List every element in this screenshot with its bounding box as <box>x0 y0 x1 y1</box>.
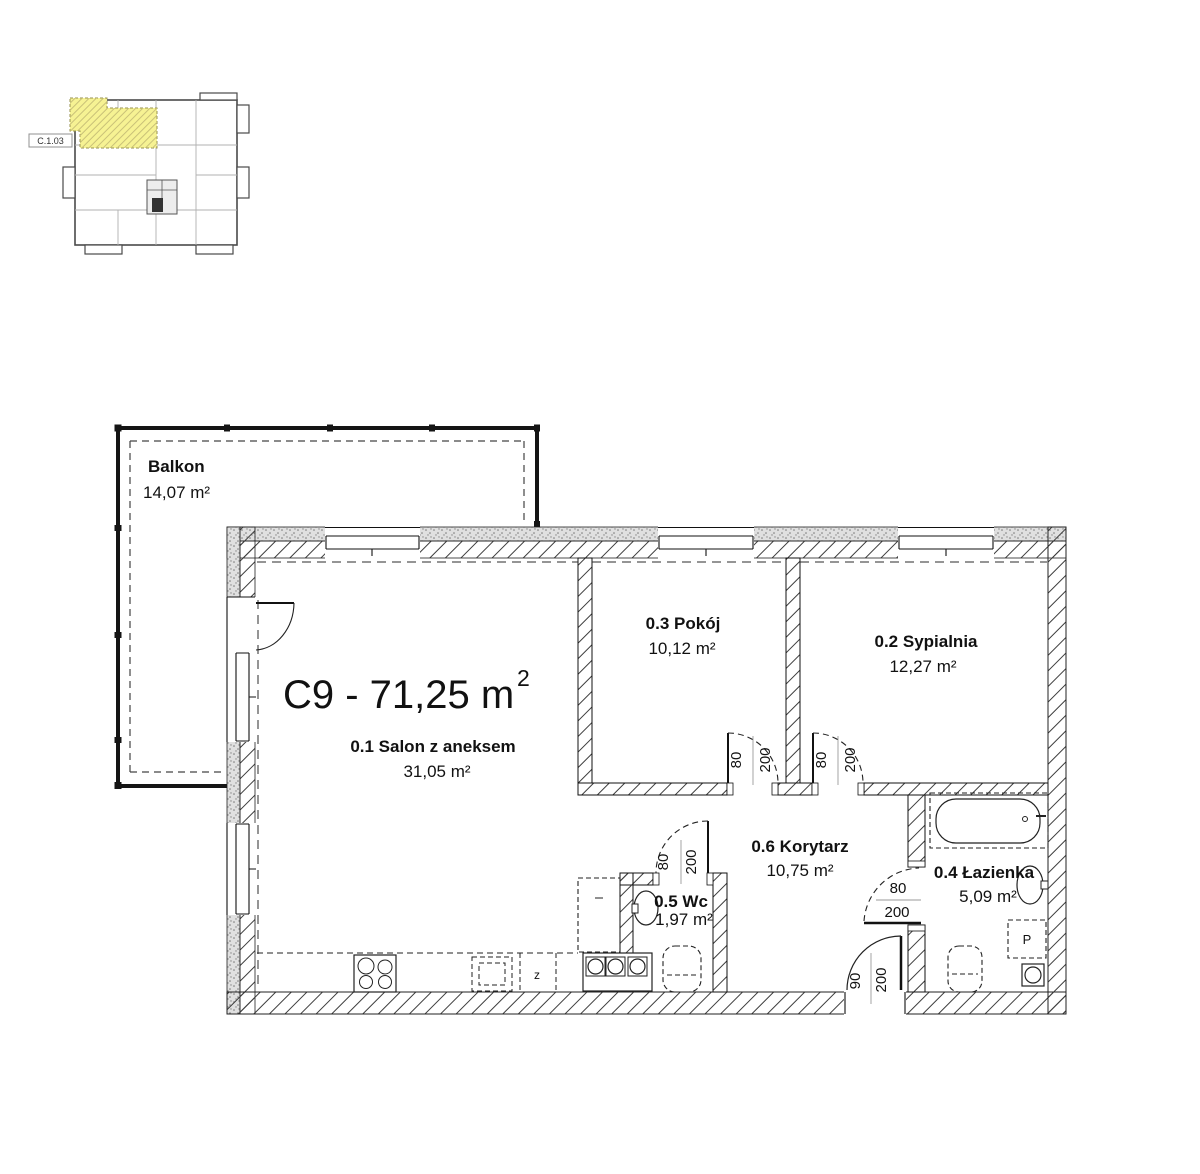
kitchen-fixtures <box>257 878 652 992</box>
floor-drain <box>1022 964 1044 986</box>
room-area-korytarz: 10,75 m² <box>766 861 833 880</box>
dim-door-pokoj: 80 200 <box>728 736 774 785</box>
balcony: Balkon 14,07 m² <box>115 425 541 790</box>
window-sypialnia <box>898 526 994 560</box>
floor-plan-page: C.1.03 Balkon 14,07 m² <box>0 0 1200 1174</box>
bathroom-toilet <box>948 946 982 992</box>
wall-pokoj-sypialnia <box>786 558 800 783</box>
wall-bathroom-upper <box>908 795 925 867</box>
window-pokoj <box>658 526 754 560</box>
hob-unit <box>583 953 652 991</box>
apartment-title-sup: 2 <box>517 665 530 691</box>
wall-wc-left <box>620 873 633 953</box>
balcony-railing <box>118 428 537 786</box>
right-wall <box>1048 527 1066 1014</box>
building-overview-map: C.1.03 <box>29 93 249 254</box>
stove <box>354 955 396 992</box>
unit-label: C.1.03 <box>29 134 72 147</box>
fridge <box>578 878 620 952</box>
room-area-wc: 1,97 m² <box>655 910 713 929</box>
balcony-door-window <box>226 597 256 742</box>
room-area-pokoj: 10,12 m² <box>648 639 715 658</box>
room-label-pokoj: 0.3 Pokój <box>646 614 721 633</box>
apartment-walls <box>227 527 1066 1014</box>
room-label-sypialnia: 0.2 Sypialnia <box>875 632 979 651</box>
apartment-title: C9 - 71,25 m <box>283 673 514 717</box>
room-label-wc: 0.5 Wc <box>654 892 708 911</box>
wall-korytarz-left <box>578 783 727 795</box>
wall-bathroom-lower <box>908 925 925 992</box>
entrance-opening <box>844 991 906 1015</box>
dim-entrance-height: 200 <box>873 967 890 992</box>
dim-lazienka-height: 200 <box>884 904 909 921</box>
bathtub <box>930 793 1048 848</box>
unit-label-text: C.1.03 <box>37 136 64 146</box>
dim-wc-width: 80 <box>655 854 672 871</box>
room-area-sypialnia: 12,27 m² <box>889 657 956 676</box>
dim-lazienka-width: 80 <box>890 880 907 897</box>
wc-toilet <box>663 946 701 992</box>
overview-stair-core <box>147 180 177 214</box>
room-area-lazienka: 5,09 m² <box>959 887 1017 906</box>
balcony-area: 14,07 m² <box>143 483 210 502</box>
bottom-wall <box>227 992 1066 1014</box>
kitchen-sink <box>472 957 512 991</box>
wall-korytarz-center <box>778 783 812 795</box>
window-salon-left <box>226 823 256 915</box>
washer-label: P <box>1023 932 1032 947</box>
balcony-door <box>256 603 294 650</box>
floor-plan-svg: C.1.03 Balkon 14,07 m² <box>0 0 1200 1174</box>
openings <box>226 526 994 1015</box>
balcony-posts <box>115 425 541 790</box>
window-salon-top <box>325 526 420 560</box>
dim-door-lazienka: 80 200 <box>876 880 921 921</box>
room-label-lazienka: 0.4 Łazienka <box>934 863 1035 882</box>
room-label-korytarz: 0.6 Korytarz <box>751 837 848 856</box>
wall-wc-right <box>713 873 727 992</box>
dishwasher-label: z <box>534 968 540 982</box>
dim-wc-height: 200 <box>683 849 700 874</box>
dim-sypialnia-height: 200 <box>842 747 859 772</box>
room-label-salon: 0.1 Salon z aneksem <box>350 737 515 756</box>
dim-pokoj-width: 80 <box>728 752 745 769</box>
dim-sypialnia-width: 80 <box>813 752 830 769</box>
room-area-salon: 31,05 m² <box>403 762 470 781</box>
balcony-name: Balkon <box>148 457 205 476</box>
dim-door-sypialnia: 80 200 <box>813 736 859 785</box>
wall-salon-pokoj <box>578 558 592 783</box>
dim-entrance-width: 90 <box>847 973 864 990</box>
dim-door-wc: 80 200 <box>655 840 700 884</box>
dim-pokoj-height: 200 <box>757 747 774 772</box>
